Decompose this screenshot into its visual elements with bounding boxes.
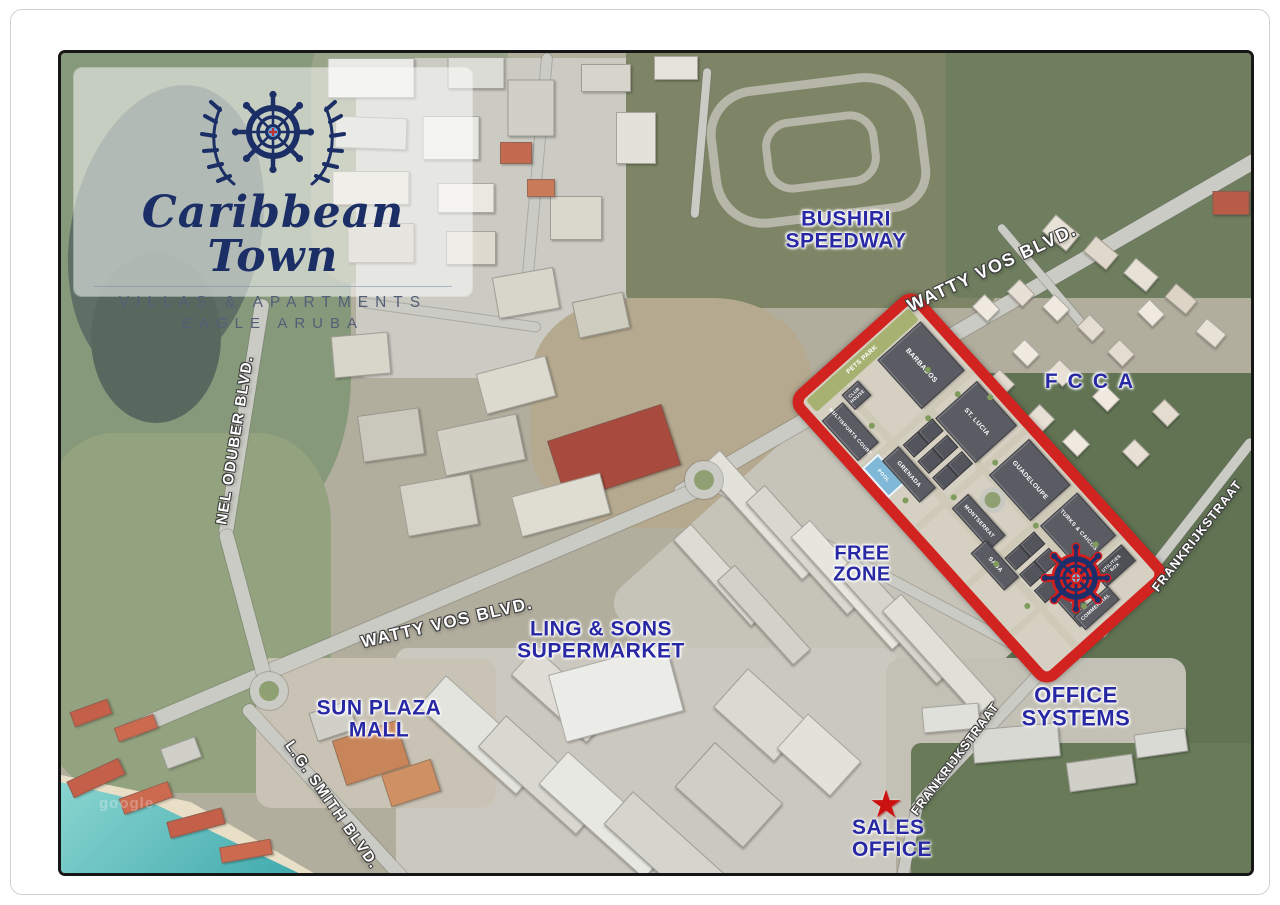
building-roof (357, 407, 425, 462)
building-label: BARBADOS (904, 347, 938, 384)
building-label: GUADELOUPE (1010, 459, 1049, 501)
building-roof (331, 332, 391, 379)
poi-sales-office: SALES OFFICE (852, 817, 932, 861)
building-roof (1213, 191, 1250, 215)
building-roof (508, 80, 555, 137)
poi-bushiri-speedway: BUSHIRI SPEEDWAY (785, 208, 906, 251)
pool-label: POOL (876, 468, 891, 484)
building-roof (1107, 339, 1135, 367)
flyer-card: PETS PARK CLUB HOUSE MULTISPORTS COURT P… (10, 9, 1270, 895)
building-roof (581, 64, 631, 92)
poi-fcca: FCCA (1045, 371, 1143, 393)
poi-free-zone: FREE ZONE (833, 543, 891, 584)
tree (901, 496, 909, 504)
building-roof (399, 473, 479, 537)
brand-location: EAGLE ARUBA (74, 314, 472, 334)
brand-name: Caribbean Town (74, 191, 472, 279)
building-roof (527, 179, 555, 197)
poi-ling-and-sons: LING & SONS SUPERMARKET (517, 618, 685, 661)
building-roof (1137, 299, 1165, 327)
logo-divider (94, 286, 452, 287)
poi-office-systems: OFFICE SYSTEMS (989, 684, 1164, 729)
building-roof (550, 196, 602, 240)
roundabout (685, 461, 723, 499)
building-label: ST. LUCIA (962, 407, 990, 437)
poi-sun-plaza-mall: SUN PLAZA MALL (317, 697, 442, 740)
building-roof (654, 56, 698, 80)
brand-logo-panel: Caribbean Town VILLAS & APARTMENTS EAGLE… (74, 68, 472, 296)
building-roof (1195, 318, 1226, 349)
building-roof (616, 112, 656, 164)
brand-tagline: VILLAS & APARTMENTS (74, 293, 472, 314)
pets-park-label: PETS PARK (845, 344, 879, 376)
building-roof (1012, 339, 1040, 367)
ship-wheel-marker-icon (1028, 530, 1124, 626)
roundabout (250, 672, 288, 710)
club-house-label: CLUB HOUSE (847, 386, 867, 405)
building-roof (500, 142, 532, 164)
imagery-watermark: google (99, 795, 154, 812)
building-roof (436, 413, 526, 476)
satellite-map: PETS PARK CLUB HOUSE MULTISPORTS COURT P… (58, 50, 1254, 876)
ship-wheel-logo-icon (168, 72, 378, 194)
